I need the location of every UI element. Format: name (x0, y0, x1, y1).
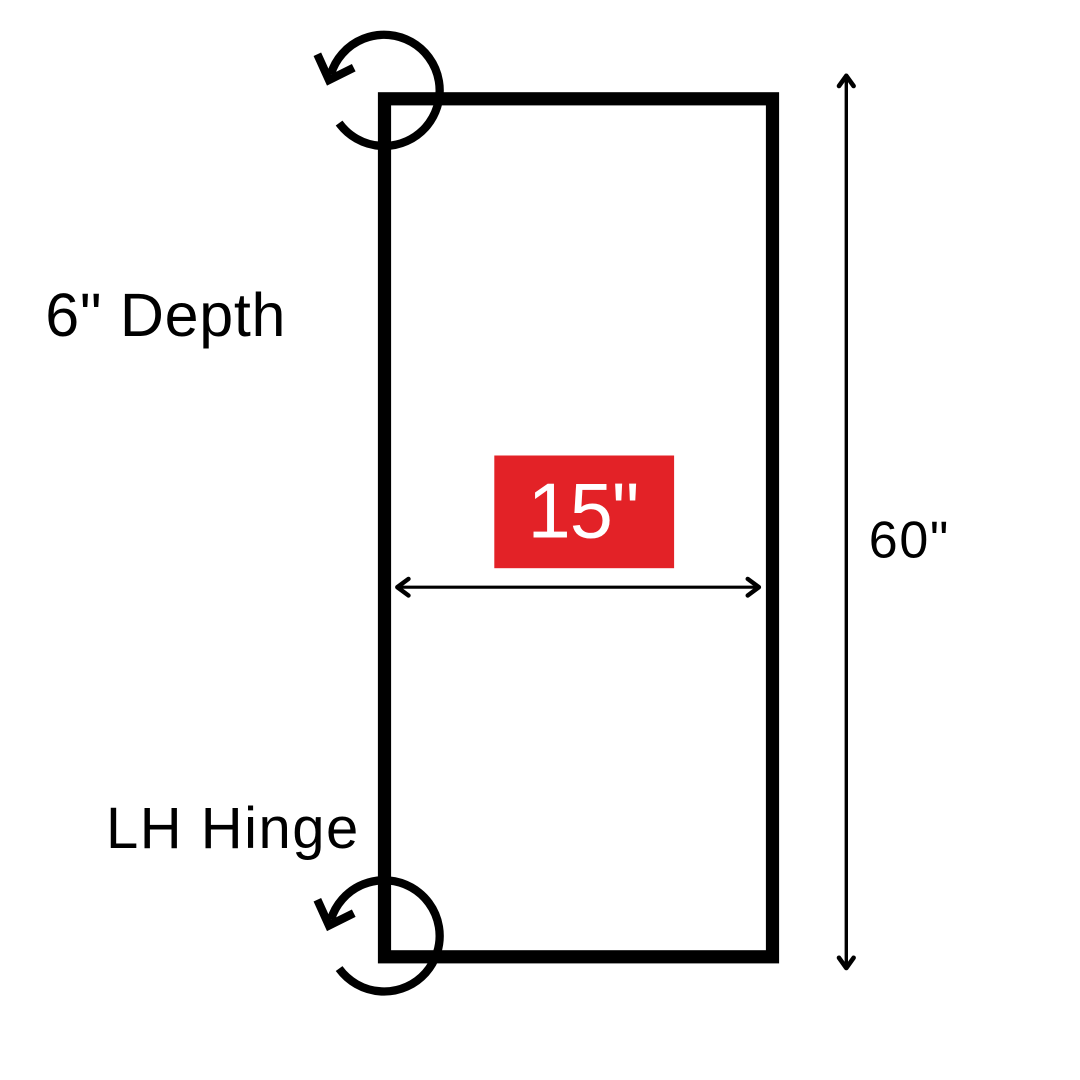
svg-text:60": 60" (869, 512, 950, 570)
svg-text:6" Depth: 6" Depth (45, 281, 286, 349)
svg-text:LH Hinge: LH Hinge (106, 796, 360, 861)
svg-text:15": 15" (528, 469, 639, 555)
